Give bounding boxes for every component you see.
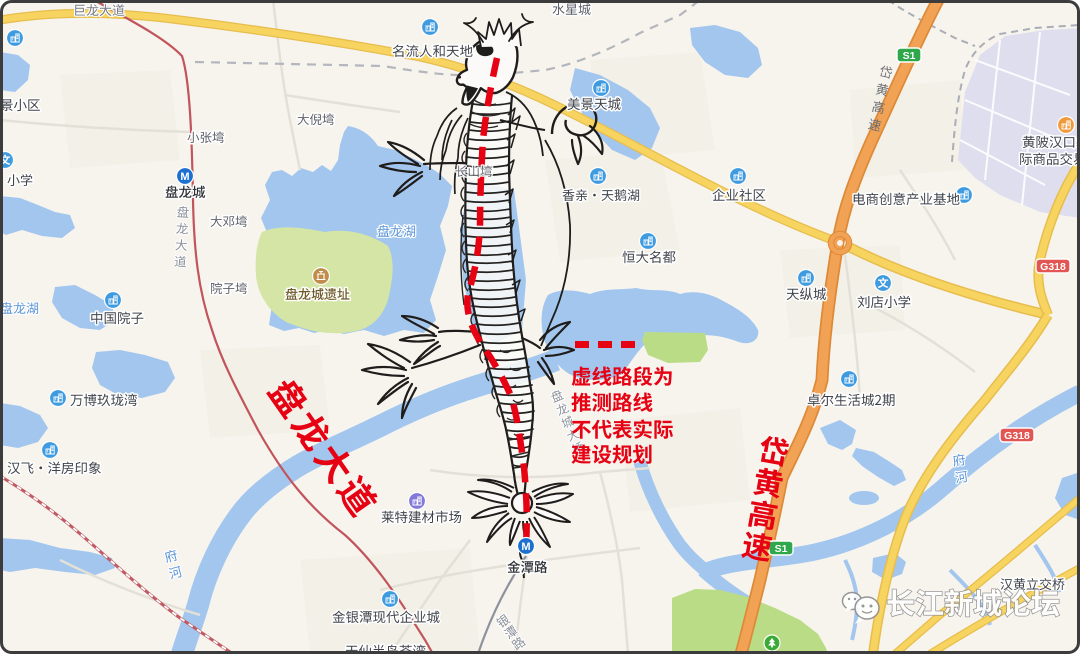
- svg-text:G318: G318: [1004, 430, 1030, 442]
- svg-text:S1: S1: [775, 543, 788, 555]
- svg-text:M: M: [521, 541, 530, 553]
- svg-text:M: M: [180, 171, 189, 183]
- svg-text:S1: S1: [903, 50, 916, 62]
- svg-text:G318: G318: [1040, 261, 1066, 273]
